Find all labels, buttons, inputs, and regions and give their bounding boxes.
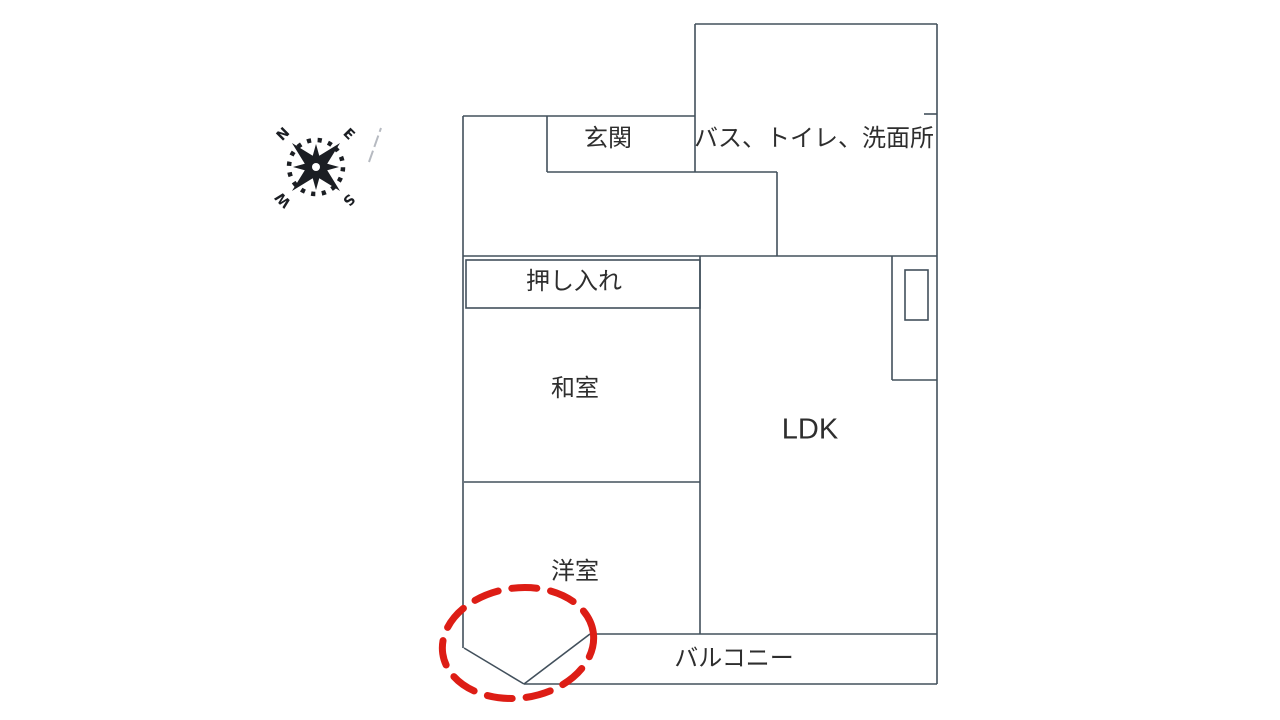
floor-plan-drawing: N E S W <box>0 0 1280 720</box>
wall-segment <box>524 634 590 684</box>
compass-letter-n: N <box>274 125 294 145</box>
room-label-balcony: バルコニー <box>674 647 794 671</box>
highlight-ellipse <box>435 578 601 708</box>
compass-rose-icon: N E S W <box>240 91 393 244</box>
wall-segment <box>464 648 524 684</box>
compass-letter-w: W <box>272 188 294 210</box>
room-label-genkan: 玄関 <box>584 127 632 151</box>
wall-box <box>905 270 928 320</box>
compass-letter-s: S <box>339 190 357 208</box>
pencil-mark <box>369 128 381 162</box>
room-label-oshiire: 押し入れ <box>526 270 622 294</box>
room-label-yoshitsu: 洋室 <box>551 560 599 584</box>
room-label-ldk: LDK <box>782 416 838 445</box>
room-label-washitsu: 和室 <box>551 377 599 401</box>
compass-letter-e: E <box>339 125 357 143</box>
slide-canvas: N E S W 玄関 バス、トイレ、洗面所 押し入れ 和室 LDK 洋室 バルコ… <box>0 0 1280 720</box>
room-label-bathroom: バス、トイレ、洗面所 <box>694 127 934 151</box>
